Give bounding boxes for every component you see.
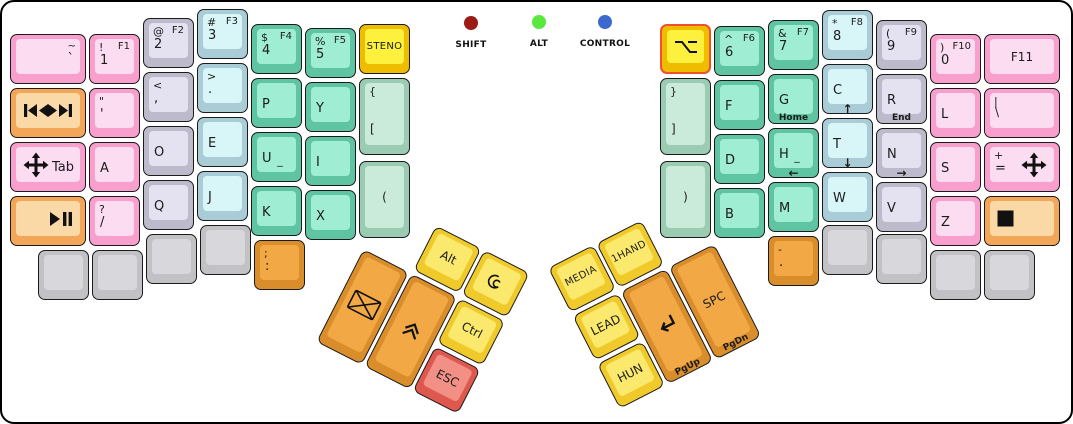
key-steno-legend-c: STENO (365, 29, 404, 64)
key-k-face: K (257, 191, 296, 226)
key-c-legend-ml: C (833, 84, 842, 97)
key-onehand-layer-face: 1HAND (604, 228, 655, 277)
key-m[interactable]: M (768, 182, 819, 232)
key-o-face: O (149, 131, 188, 166)
key-1-legend-ml: 1 (100, 54, 108, 67)
key-onehand-layer-legend-c: 1HAND (604, 228, 655, 277)
key-question-slash-legend-ml: / (100, 216, 104, 229)
keyboard-layout: SHIFT ALT CONTROL ~`!F11@F22#F33$F44%F55… (0, 0, 1073, 424)
key-3-legend-tl: # (207, 17, 216, 28)
key-pipe-face: |\ (990, 93, 1054, 128)
key-4-legend-ml: 4 (262, 44, 270, 57)
key-t[interactable]: T↓ (822, 118, 873, 168)
key-9-legend-tr: F9 (905, 28, 917, 38)
key-i[interactable]: I (305, 136, 356, 186)
key-blank-6[interactable] (876, 234, 927, 284)
key-p-legend-ml: P (262, 98, 270, 111)
key-p[interactable]: P (251, 78, 302, 128)
key-esc-face: ESC (422, 353, 473, 402)
key-stop[interactable] (984, 196, 1060, 246)
next-track-icon (47, 93, 73, 128)
shift-indicator-label: SHIFT (436, 40, 506, 50)
key-c-legend-bottom: ↑ (823, 103, 872, 115)
key-a-face: A (95, 147, 134, 182)
key-5-legend-tl: % (315, 36, 325, 47)
key-steno[interactable]: STENO (359, 24, 410, 74)
key-7-legend-tr: F7 (797, 28, 809, 38)
key-t-legend-bottom: ↓ (823, 157, 872, 169)
key-plus[interactable]: += (984, 142, 1060, 192)
key-h[interactable]: H_← (768, 128, 819, 178)
key-brace-open-face: {[ (365, 83, 404, 145)
key-alt-legend-c: Alt (423, 233, 474, 282)
key-a-legend-ml: A (100, 162, 109, 175)
key-5-face: %F55 (311, 33, 350, 68)
move-icon (23, 147, 49, 182)
key-period-legend-ml: . (208, 83, 212, 96)
key-question-slash-legend-tl: ? (99, 204, 105, 215)
key-f11-face: F11 (990, 39, 1054, 74)
key-a[interactable]: A (89, 142, 140, 192)
key-comma-legend-tl: < (153, 80, 162, 91)
key-x-face: X (311, 195, 350, 230)
key-i-face: I (311, 141, 350, 176)
key-e[interactable]: E (197, 117, 248, 167)
indicator-shift: SHIFT (436, 16, 506, 50)
key-u[interactable]: U_ (251, 132, 302, 182)
key-media-layer-legend-c: MEDIA (556, 252, 607, 301)
key-plus-legend-tl: + (994, 150, 1003, 161)
key-blank-8[interactable] (984, 250, 1035, 300)
key-play-pause[interactable] (10, 196, 86, 246)
key-x[interactable]: X (305, 190, 356, 240)
key-q[interactable]: Q (143, 180, 194, 230)
control-indicator-dot (598, 15, 612, 29)
key-3[interactable]: #F33 (197, 9, 248, 59)
key-y-legend-ml: Y (316, 102, 324, 115)
key-brace-open-legend-tl: { (369, 86, 376, 97)
key-3-face: #F33 (203, 14, 242, 49)
key-7-legend-ml: 7 (779, 40, 787, 53)
key-r-legend-bottom: End (877, 114, 926, 123)
key-d[interactable]: D (714, 134, 765, 184)
key-tilde-legend-mr: ` (68, 53, 75, 66)
key-c-face: C (828, 69, 867, 104)
key-h-legend-ml: H (779, 148, 789, 161)
key-o[interactable]: O (143, 126, 194, 176)
key-o-legend-ml: O (154, 146, 164, 159)
key-0-legend-tr: F10 (953, 42, 971, 52)
key-1[interactable]: !F11 (89, 34, 140, 84)
key-8-legend-ml: 8 (833, 30, 841, 43)
key-g-face: G (774, 79, 813, 114)
key-1-legend-tl: ! (99, 42, 103, 53)
key-lead-face: LEAD (580, 300, 631, 349)
key-9-legend-ml: 9 (887, 40, 895, 53)
key-v-face: V (882, 187, 921, 222)
key-quote-legend-tl: " (99, 96, 104, 107)
key-8[interactable]: *F88 (822, 10, 873, 60)
shift-indicator-dot (464, 16, 478, 30)
key-u-legend-ml: U (262, 152, 272, 165)
key-blank-6-face (882, 239, 921, 274)
key-comma-legend-ml: , (154, 92, 158, 105)
key-0[interactable]: )F100 (930, 34, 981, 84)
key-5[interactable]: %F55 (305, 28, 356, 78)
key-s-legend-ml: S (941, 162, 949, 175)
key-s-face: S (936, 147, 975, 182)
key-p-face: P (257, 83, 296, 118)
key-7-legend-tl: & (778, 28, 787, 39)
key-brace-close-legend-tl: } (670, 86, 677, 97)
alt-indicator-dot (532, 15, 546, 29)
key-brace-open[interactable]: {[ (359, 78, 410, 155)
stop-icon (997, 201, 1014, 236)
key-minus-face: -. (774, 241, 813, 276)
key-y-face: Y (311, 87, 350, 122)
key-blank-1[interactable] (38, 250, 89, 300)
key-t-legend-ml: T (833, 138, 841, 151)
key-period-face: >. (203, 68, 242, 103)
key-m-face: M (774, 187, 813, 222)
key-g-legend-bottom: Home (769, 114, 818, 123)
key-2-legend-tl: @ (153, 26, 164, 37)
key-l[interactable]: L (930, 88, 981, 138)
key-plus-face: += (990, 147, 1054, 182)
key-brace-close-legend-bl: ] (671, 123, 676, 135)
key-z[interactable]: Z (930, 196, 981, 246)
key-c[interactable]: C↑ (822, 64, 873, 114)
key-f11-legend-c: F11 (990, 39, 1054, 74)
key-blank-4[interactable] (200, 225, 251, 275)
key-n-face: N (882, 133, 921, 168)
key-brace-close[interactable]: }] (660, 78, 711, 155)
key-6-legend-tr: F6 (743, 34, 755, 44)
key-6[interactable]: ^F66 (714, 26, 765, 76)
key-blank-3[interactable] (146, 234, 197, 284)
key-8-legend-tr: F8 (851, 18, 863, 28)
key-6-legend-tl: ^ (724, 34, 733, 45)
key-x-legend-ml: X (316, 210, 325, 223)
key-g-legend-ml: G (779, 94, 789, 107)
key-j-face: J (203, 176, 242, 211)
key-u-face: U_ (257, 137, 296, 172)
key-media-prev-next[interactable] (10, 88, 86, 138)
key-i-legend-ml: I (316, 156, 320, 169)
key-q-legend-ml: Q (154, 200, 164, 213)
key-r-legend-ml: R (887, 94, 896, 107)
key-hun-legend-c: HUN (605, 348, 656, 397)
key-blank-5[interactable] (822, 225, 873, 275)
key-f-face: F (720, 85, 759, 120)
key-1-face: !F11 (95, 39, 134, 74)
indicator-control: CONTROL (570, 15, 640, 49)
key-y[interactable]: Y (305, 82, 356, 132)
key-option[interactable] (660, 24, 711, 74)
key-pipe-legend-bl: \ (995, 106, 999, 118)
key-tilde-face: ~` (16, 39, 80, 74)
key-blank-4-face (206, 230, 245, 265)
key-4-legend-tr: F4 (280, 32, 292, 42)
key-4-legend-tl: $ (261, 32, 268, 43)
key-2-face: @F22 (149, 23, 188, 58)
key-option-face (667, 30, 704, 63)
key-6-legend-ml: 6 (725, 46, 733, 59)
key-semicolon-legend-tl: ; (264, 248, 268, 259)
key-l-face: L (936, 93, 975, 128)
key-8-face: *F88 (828, 15, 867, 50)
key-blank-3-face (152, 239, 191, 274)
key-n-legend-ml: N (887, 148, 897, 161)
key-blank-2-face (98, 255, 137, 290)
key-d-legend-ml: D (725, 154, 735, 167)
key-tab[interactable]: Tab (10, 142, 86, 192)
key-stop-face (990, 201, 1054, 236)
key-4[interactable]: $F44 (251, 24, 302, 74)
key-2-legend-ml: 2 (154, 38, 162, 51)
key-period-legend-tl: > (207, 71, 216, 82)
key-lead-legend-c: LEAD (580, 300, 631, 349)
key-pipe[interactable]: |\ (984, 88, 1060, 138)
key-media-layer-face: MEDIA (556, 252, 607, 301)
key-s[interactable]: S (930, 142, 981, 192)
indicator-alt: ALT (504, 15, 574, 49)
key-minus-legend-tl: - (778, 244, 782, 255)
key-9-legend-tl: ( (886, 28, 890, 39)
key-blank-7-face (936, 255, 975, 290)
key-0-face: )F100 (936, 39, 975, 74)
key-play-pause-face (16, 201, 80, 236)
key-8-legend-tl: * (832, 18, 838, 29)
key-h-face: H_ (774, 133, 813, 168)
key-blank-5-face (828, 230, 867, 265)
key-tab-legend-mr: Tab (52, 161, 74, 174)
key-f[interactable]: F (714, 80, 765, 130)
key-u-legend-sub: _ (277, 155, 283, 166)
key-esc-legend-c: ESC (422, 353, 473, 402)
key-0-legend-ml: 0 (941, 54, 949, 67)
key-2[interactable]: @F22 (143, 18, 194, 68)
key-9[interactable]: (F99 (876, 20, 927, 70)
key-minus[interactable]: -. (768, 236, 819, 286)
key-t-face: T (828, 123, 867, 158)
key-j[interactable]: J (197, 171, 248, 221)
key-media-prev-next-face (16, 93, 80, 128)
key-blank-7[interactable] (930, 250, 981, 300)
key-r-face: R (882, 79, 921, 114)
key-semicolon-face: ;: (260, 245, 299, 280)
previous-track-icon (23, 93, 49, 128)
key-tilde[interactable]: ~` (10, 34, 86, 84)
key-w-face: W (828, 177, 867, 212)
key-7-face: &F77 (774, 25, 813, 60)
key-question-slash[interactable]: ?/ (89, 196, 140, 246)
key-n-legend-bottom: → (877, 167, 926, 179)
key-6-face: ^F66 (720, 31, 759, 66)
play-pause-icon (49, 201, 73, 236)
alt-indicator-label: ALT (504, 39, 574, 49)
key-blank-2[interactable] (92, 250, 143, 300)
key-alt-face: Alt (423, 233, 474, 282)
key-semicolon[interactable]: ;: (254, 240, 305, 290)
key-f-legend-ml: F (725, 100, 732, 113)
key-d-face: D (720, 139, 759, 174)
key-l-legend-ml: L (941, 108, 948, 121)
key-b-face: B (720, 193, 759, 228)
key-1-legend-tr: F1 (118, 42, 130, 52)
key-b-legend-ml: B (725, 208, 734, 221)
key-ctrl-face: Ctrl (447, 305, 498, 354)
control-indicator-label: CONTROL (570, 39, 640, 49)
key-j-legend-ml: J (208, 191, 212, 204)
key-4-face: $F44 (257, 29, 296, 64)
key-k[interactable]: K (251, 186, 302, 236)
key-quote[interactable]: "' (89, 88, 140, 138)
key-f11[interactable]: F11 (984, 34, 1060, 84)
key-5-legend-tr: F5 (334, 36, 346, 46)
key-brace-open-legend-bl: [ (370, 123, 375, 135)
key-h-legend-sub: _ (794, 151, 800, 162)
key-comma-face: <, (149, 77, 188, 112)
key-tab-face: Tab (16, 147, 80, 182)
key-m-legend-ml: M (779, 202, 790, 215)
key-quote-legend-ml: ' (100, 108, 104, 121)
key-5-legend-ml: 5 (316, 48, 324, 61)
key-comma[interactable]: <, (143, 72, 194, 122)
key-w-legend-ml: W (833, 192, 846, 205)
key-period[interactable]: >. (197, 63, 248, 113)
key-ctrl-legend-c: Ctrl (447, 305, 498, 354)
key-blank-8-face (990, 255, 1029, 290)
key-blank-1-face (44, 255, 83, 290)
key-v[interactable]: V (876, 182, 927, 232)
key-z-legend-ml: Z (941, 216, 950, 229)
key-0-legend-tl: ) (940, 42, 944, 53)
key-b[interactable]: B (714, 188, 765, 238)
key-hun-face: HUN (605, 348, 656, 397)
key-super-face (471, 257, 522, 306)
key-3-legend-ml: 3 (208, 29, 216, 42)
key-w[interactable]: W (822, 172, 873, 222)
key-2-legend-tr: F2 (172, 26, 184, 36)
key-e-legend-ml: E (208, 137, 216, 150)
key-r[interactable]: REnd (876, 74, 927, 124)
key-semicolon-legend-ml: : (265, 260, 269, 273)
key-quote-face: "' (95, 93, 134, 128)
key-k-legend-ml: K (262, 206, 271, 219)
key-steno-face: STENO (365, 29, 404, 64)
key-n[interactable]: N→ (876, 128, 927, 178)
key-9-face: (F99 (882, 25, 921, 60)
move-icon (1021, 147, 1047, 182)
key-z-face: Z (936, 201, 975, 236)
key-minus-legend-ml: . (779, 256, 783, 269)
key-e-face: E (203, 122, 242, 157)
key-3-legend-tr: F3 (226, 17, 238, 27)
key-v-legend-ml: V (887, 202, 896, 215)
key-plus-legend-ml: = (995, 162, 1006, 175)
key-q-face: Q (149, 185, 188, 220)
key-question-slash-face: ?/ (95, 201, 134, 236)
key-7[interactable]: &F77 (768, 20, 819, 70)
key-g[interactable]: GHome (768, 74, 819, 124)
key-tilde-legend-tr: ~ (68, 42, 76, 52)
debian-swirl-icon (471, 257, 522, 306)
key-brace-close-face: }] (666, 83, 705, 145)
key-h-legend-bottom: ← (769, 167, 818, 179)
option-icon (667, 30, 704, 63)
